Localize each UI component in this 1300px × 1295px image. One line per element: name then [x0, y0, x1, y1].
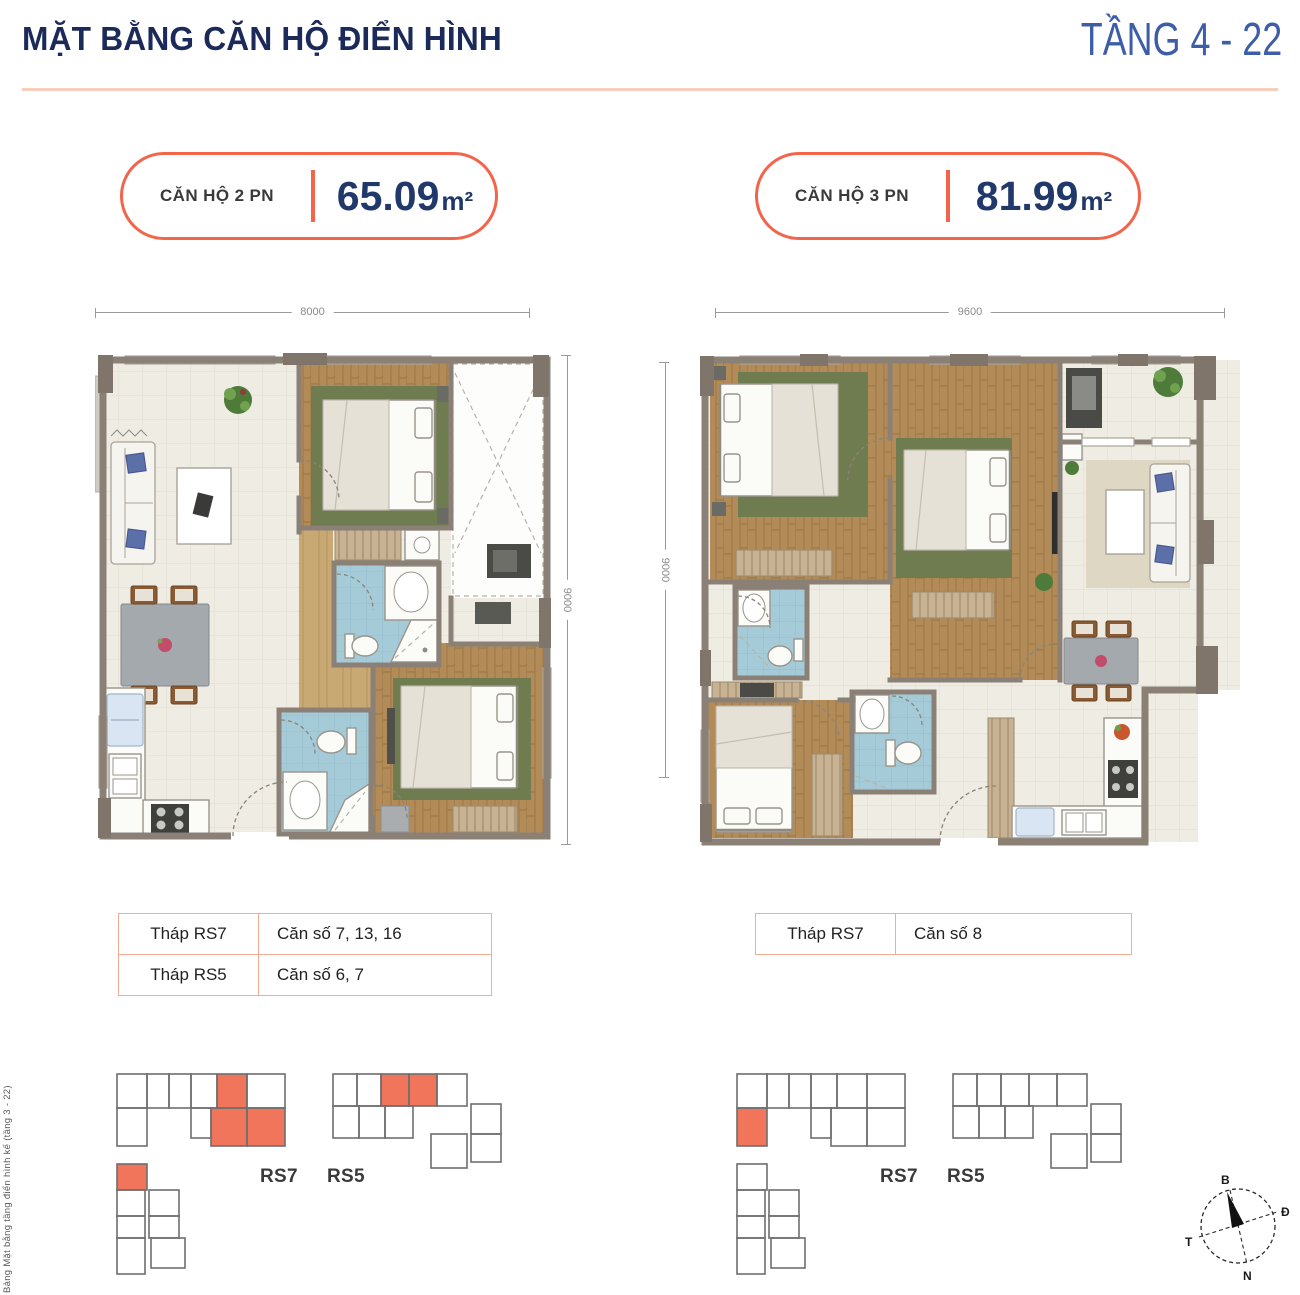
table-cell-units: Căn số 7, 13, 16 [259, 914, 491, 954]
header-divider [22, 88, 1278, 91]
dim-3pn-width-label: 9600 [949, 305, 991, 319]
side-note: Bảng Mặt bằng tầng điển hình kế (tầng 3 … [2, 998, 13, 1293]
floor-range-label: TẦNG 4 - 22 [1081, 12, 1282, 66]
table-cell-units: Căn số 8 [896, 914, 1131, 954]
toilet-icon [886, 740, 921, 766]
bedroom2-bed-icon [387, 678, 531, 800]
bedroom1-wardrobe-icon [736, 550, 832, 576]
unit-2pn-area: 65.09m² [315, 173, 495, 220]
footprint-notch [1198, 690, 1240, 845]
entry-gap [940, 838, 998, 846]
unit-3pn-table: Tháp RS7 Căn số 8 [755, 913, 1132, 955]
dresser-tv-icon [740, 683, 774, 697]
table-cell-tower: Tháp RS7 [756, 914, 896, 954]
unit-2pn-area-value: 65.09 [337, 173, 440, 219]
bedroom3-wardrobe-icon [812, 754, 842, 836]
pillar [98, 355, 113, 393]
compass-icon: B Đ T N [1183, 1148, 1295, 1293]
keyplan-rs7-label: RS7 [880, 1166, 918, 1187]
dim-3pn-height-label: 9000 [659, 550, 671, 590]
dim-3pn-height: 9000 [658, 362, 672, 778]
unit-3pn-badge-label: CĂN HỘ 3 PN [758, 186, 946, 206]
pillar [98, 798, 111, 838]
keyplan-rs7-highlights [737, 1108, 767, 1146]
keyplan-rs5-label: RS5 [327, 1166, 365, 1187]
pillar [533, 355, 549, 397]
dim-2pn-width: 8000 [95, 305, 530, 319]
table-cell-units: Căn số 6, 7 [259, 954, 491, 995]
unit-2pn-area-unit: m² [441, 186, 473, 216]
keyplan-rs7-label: RS7 [260, 1166, 298, 1187]
sofa-icon [1150, 464, 1190, 582]
bedroom1-bed-icon [712, 366, 868, 517]
pillar [950, 354, 988, 366]
table-cell-tower: Tháp RS5 [119, 954, 259, 995]
unit-3pn-area-unit: m² [1080, 186, 1112, 216]
bathroom2 [279, 710, 371, 834]
bathroom1 [735, 587, 807, 678]
plant-icon [224, 386, 252, 414]
keyplan-3pn: RS7 RS5 [725, 1060, 1135, 1295]
unit-2pn-badge: CĂN HỘ 2 PN 65.09m² [120, 152, 498, 240]
plant-icon [1035, 573, 1053, 591]
keyplan-2pn: RS7 RS5 [105, 1060, 515, 1295]
compass-south-label: N [1243, 1269, 1252, 1283]
unit-2pn-badge-label: CĂN HỘ 2 PN [123, 186, 311, 206]
unit-3pn-area: 81.99m² [950, 173, 1138, 220]
bedroom2-wardrobe-icon [912, 592, 994, 618]
pillar [283, 353, 327, 365]
shoe-cabinet-icon [475, 602, 511, 624]
unit-3pn-badge: CĂN HỘ 3 PN 81.99m² [755, 152, 1141, 240]
compass-needle [1227, 1192, 1244, 1228]
pillar [1198, 520, 1214, 564]
keyplan-rs5-label: RS5 [947, 1166, 985, 1187]
pillar [700, 804, 712, 842]
unit-2pn-table: Tháp RS7 Căn số 7, 13, 16 Tháp RS5 Căn s… [118, 913, 492, 996]
dim-2pn-height-label: 9000 [561, 580, 573, 620]
balcony-window [1082, 438, 1134, 446]
floorplan-3pn [700, 350, 1245, 850]
unit-3pn-area-value: 81.99 [976, 173, 1079, 219]
page-title: MẶT BẰNG CĂN HỘ ĐIỂN HÌNH [22, 20, 502, 58]
compass-west-label: T [1185, 1235, 1193, 1249]
plant-icon [1065, 461, 1079, 475]
coffee-table-icon [177, 468, 231, 544]
mat-icon [381, 806, 409, 832]
sofa-icon [111, 442, 155, 564]
bathroom2 [852, 692, 934, 792]
pillar [1118, 354, 1148, 366]
vanity-sink-icon [405, 530, 439, 560]
pillar [800, 354, 828, 366]
balcony-window [1152, 438, 1190, 446]
floorplan-2pn [95, 348, 555, 848]
pillar [700, 356, 714, 396]
toilet-icon [345, 634, 378, 658]
brochure-page: MẶT BẰNG CĂN HỘ ĐIỂN HÌNH TẦNG 4 - 22 CĂ… [0, 0, 1300, 1295]
wardrobe-icon [335, 530, 401, 560]
dining-table-icon [121, 586, 209, 704]
bedroom3-bed-icon [716, 706, 792, 832]
pillar [1196, 646, 1218, 694]
compass-north-label: B [1221, 1173, 1230, 1187]
bathroom1 [335, 564, 439, 664]
coffee-table-icon [1106, 490, 1144, 554]
bedroom2-bed-icon [896, 438, 1012, 578]
dim-2pn-height: 9000 [560, 355, 574, 845]
dim-3pn-width: 9600 [715, 305, 1225, 319]
table-cell-tower: Tháp RS7 [119, 914, 259, 954]
compass-east-label: Đ [1281, 1205, 1290, 1219]
dim-2pn-width-label: 8000 [291, 305, 333, 319]
bedroom2-wardrobe-icon [453, 806, 517, 832]
washer-door-icon [493, 550, 517, 572]
pillar [1194, 356, 1216, 400]
master-bed-icon [311, 386, 451, 526]
pillar [539, 598, 551, 648]
pillar [700, 650, 711, 686]
